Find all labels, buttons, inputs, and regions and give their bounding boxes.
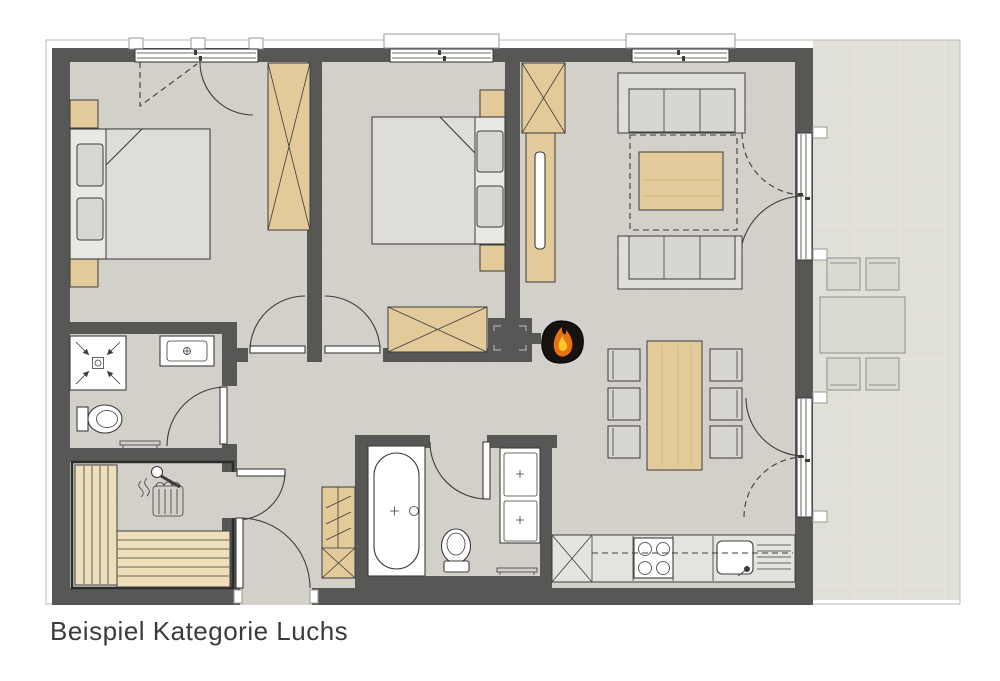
window-living [626,34,735,62]
wall-bathroom2-bottom [368,576,540,588]
sofa-icon [618,236,742,289]
wall-right [795,48,813,605]
washbasin-icon [160,336,214,366]
nightstand-icon [70,259,98,287]
wall-bedroom2-right [505,62,520,322]
dining-area [608,341,742,470]
coffee-table-icon [639,152,723,210]
toilet-icon [77,405,122,433]
double-bed-icon [70,129,210,259]
dining-table-icon [647,341,702,470]
double-washbasin-icon [500,448,540,543]
wall-bathroom2-right [540,435,552,588]
terrace-chair-icon [827,358,860,390]
floor-plan-page: Beispiel Kategorie Luchs [0,0,1000,681]
tv-icon [535,152,545,249]
terrace-chair-icon [866,258,899,290]
terrace-table-icon [820,297,905,353]
toilet-icon [442,529,471,572]
plan-caption: Beispiel Kategorie Luchs [50,616,348,647]
wardrobe-icon [522,63,565,133]
chair-icon [608,388,640,420]
nightstand-icon [480,245,505,271]
wall-stub-bedroom1-door [237,348,248,362]
terrace-chair-icon [827,258,860,290]
shower-icon [70,336,126,390]
kitchen-stove-icon [634,538,673,578]
kitchen [552,535,795,582]
chair-icon [710,388,742,420]
wardrobe-icon [268,63,310,230]
sauna-bench-icon [117,531,230,587]
sauna-bench-icon [75,465,117,585]
wall-left [52,48,70,605]
terrace-chair-icon [866,358,899,390]
nightstand-icon [70,100,98,128]
chair-icon [608,426,640,458]
sideboard-icon [388,307,487,352]
window-bedroom2 [384,34,499,62]
wall-bathroom2-left [355,435,368,588]
wall-bottom [52,588,813,605]
chair-icon [710,349,742,381]
floor-plan-drawing [0,0,1000,681]
chair-icon [710,426,742,458]
chair-icon [608,349,640,381]
bathtub-icon [368,446,425,576]
shelf-cabinet-icon [322,487,355,578]
sofa-icon [618,73,745,133]
wall-sauna-top [70,448,237,462]
wall-bathroom1-top [70,322,237,334]
double-bed-icon [372,117,505,244]
